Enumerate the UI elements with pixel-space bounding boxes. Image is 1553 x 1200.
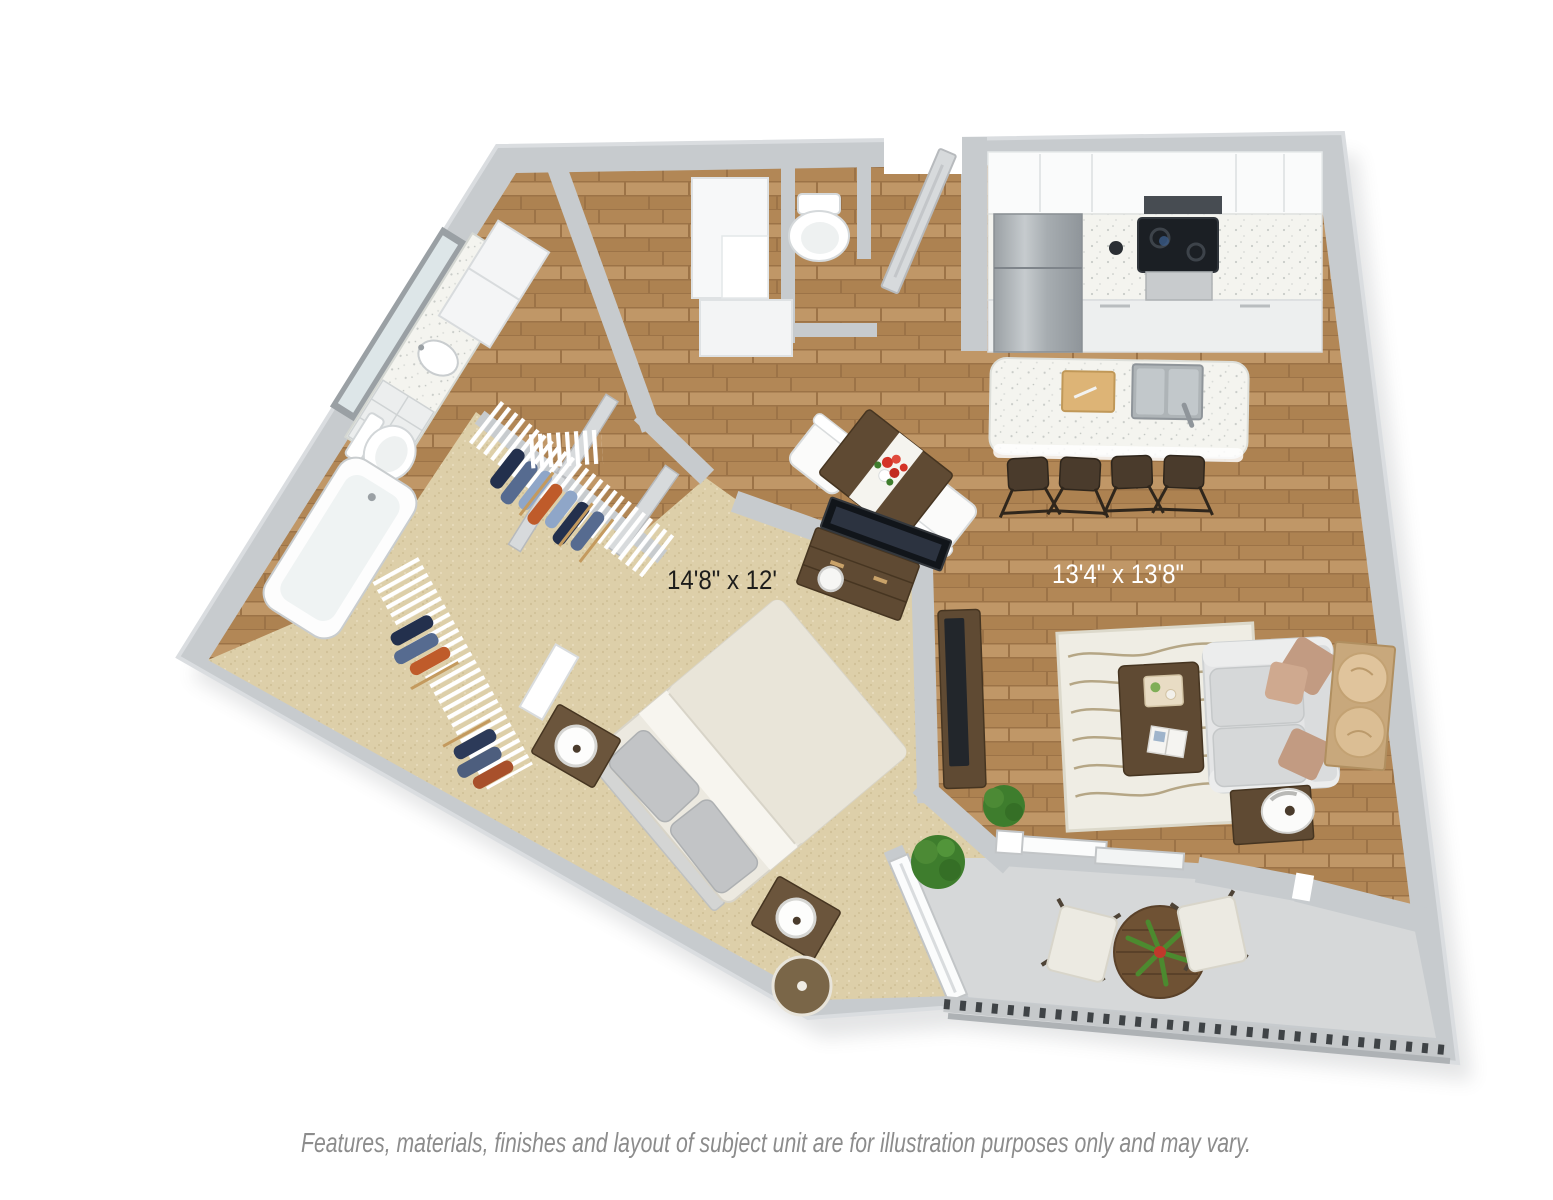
powder-room-toilet xyxy=(789,194,849,261)
sofa xyxy=(1202,632,1346,793)
double-sink xyxy=(1132,364,1203,425)
microwave xyxy=(1144,196,1222,214)
magazine xyxy=(1147,726,1187,757)
refrigerator xyxy=(994,214,1082,352)
floor-plan-rendering: 14'8" x 12' 13'4" x 13'8" Features, mate… xyxy=(0,0,1553,1200)
tv-stand xyxy=(938,609,986,788)
potted-plant xyxy=(911,835,965,889)
kettle xyxy=(1109,241,1123,255)
oven xyxy=(1146,272,1212,300)
coffee-table xyxy=(1118,662,1204,776)
bedroom-dimensions-label: 14'8" x 12' xyxy=(667,565,777,595)
cutting-board xyxy=(1062,371,1115,412)
living-dimensions-label: 13'4" x 13'8" xyxy=(1052,559,1184,589)
kitchen-island xyxy=(989,358,1249,462)
side-table xyxy=(1230,785,1316,845)
serving-tray xyxy=(1144,675,1184,707)
floor-plan-page: 14'8" x 12' 13'4" x 13'8" Features, mate… xyxy=(0,0,1553,1200)
cooktop xyxy=(1138,218,1218,272)
wall-art xyxy=(1325,642,1396,771)
potted-plant xyxy=(983,785,1025,827)
accent-pillow xyxy=(1264,661,1309,706)
closet-shelf-small xyxy=(529,430,603,469)
disclaimer-text: Features, materials, finishes and layout… xyxy=(301,1127,1251,1158)
